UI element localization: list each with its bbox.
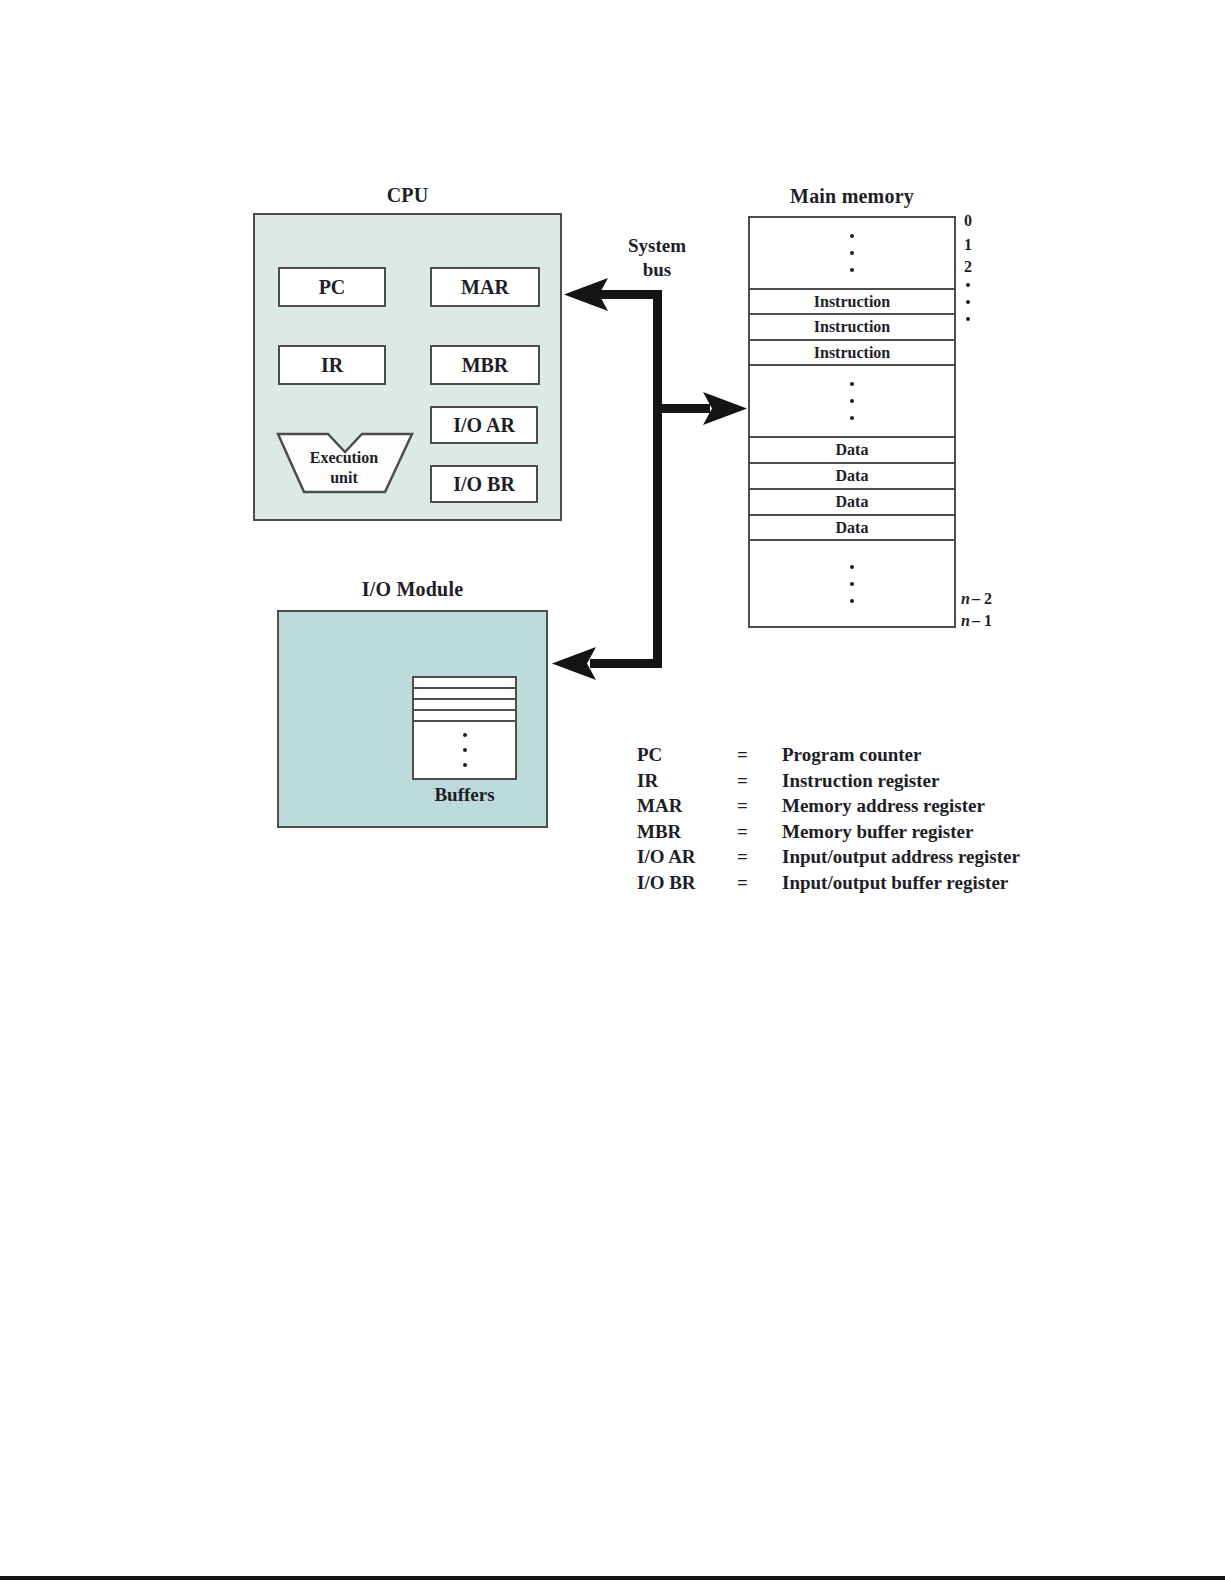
legend-equals: = (737, 870, 782, 896)
legend-equals: = (737, 742, 782, 768)
legend-abbr: MBR (637, 819, 737, 845)
legend-abbr: I/O AR (637, 844, 737, 870)
system-bus-label-line2: bus (597, 258, 717, 282)
legend-equals: = (737, 768, 782, 794)
bus-arm-to-io-module (590, 659, 662, 668)
register-pc: PC (278, 267, 386, 307)
system-bus-label: System bus (597, 234, 717, 282)
legend-abbr: PC (637, 742, 737, 768)
legend-abbr: I/O BR (637, 870, 737, 896)
legend-equals: = (737, 819, 782, 845)
memory-row-data: Data (750, 514, 954, 539)
vertical-ellipsis-icon (850, 565, 854, 603)
system-bus-trunk (653, 290, 662, 668)
main-memory-table: Instruction Instruction Instruction Data… (748, 216, 956, 628)
legend-desc: Input/output address register (782, 844, 1020, 870)
system-bus-label-line1: System (597, 234, 717, 258)
vertical-ellipsis-icon (850, 234, 854, 272)
execution-unit-label-line1: Execution (288, 448, 400, 468)
bus-arrow-to-memory-icon (703, 392, 747, 425)
buffer-slot (414, 678, 515, 689)
buffer-slot (414, 689, 515, 700)
buffer-slot (414, 711, 515, 722)
memory-row-instruction: Instruction (750, 313, 954, 339)
execution-unit-label-line2: unit (288, 468, 400, 488)
memory-row-ellipsis (750, 364, 954, 436)
bus-arrow-to-cpu-icon (564, 278, 608, 311)
legend-equals: = (737, 844, 782, 870)
register-mbr: MBR (430, 345, 540, 385)
legend-equals: = (737, 793, 782, 819)
legend-desc: Instruction register (782, 768, 1020, 794)
buffers-label: Buffers (412, 784, 517, 806)
memory-row-instruction: Instruction (750, 339, 954, 364)
memory-row-data: Data (750, 462, 954, 488)
legend-desc: Input/output buffer register (782, 870, 1020, 896)
memory-address-2: 2 (964, 259, 972, 275)
register-io-br: I/O BR (430, 465, 538, 503)
io-module-title: I/O Module (277, 578, 548, 601)
vertical-ellipsis-icon (850, 382, 854, 420)
main-memory-title: Main memory (748, 185, 956, 208)
memory-row-ellipsis (750, 539, 954, 626)
vertical-ellipsis-icon (966, 283, 970, 321)
legend-desc: Memory buffer register (782, 819, 1020, 845)
memory-row-data: Data (750, 436, 954, 462)
bus-arm-to-cpu (596, 290, 662, 299)
legend-abbr: IR (637, 768, 737, 794)
bus-arm-to-memory (653, 404, 710, 413)
legend-desc: Memory address register (782, 793, 1020, 819)
memory-address-n-minus-1: n– 1 (961, 613, 992, 629)
cpu-title: CPU (253, 184, 562, 207)
vertical-ellipsis-icon (463, 733, 467, 767)
memory-address-1: 1 (964, 237, 972, 253)
bus-arrow-to-io-module-icon (552, 647, 596, 680)
buffer-slot (414, 700, 515, 711)
page-bottom-rule (0, 1576, 1225, 1580)
legend: PC = Program counter IR = Instruction re… (637, 742, 1020, 895)
legend-desc: Program counter (782, 742, 1020, 768)
memory-address-0: 0 (964, 213, 972, 229)
register-io-ar: I/O AR (430, 406, 538, 444)
document-page: CPU PC MAR IR MBR I/O AR I/O BR Executio… (0, 0, 1225, 1585)
register-ir: IR (278, 345, 386, 385)
register-mar: MAR (430, 267, 540, 307)
execution-unit-label: Execution unit (288, 448, 400, 488)
memory-row-data: Data (750, 488, 954, 514)
legend-abbr: MAR (637, 793, 737, 819)
buffer-ellipsis-area (414, 722, 515, 778)
memory-row-instruction: Instruction (750, 288, 954, 313)
memory-row-ellipsis (750, 218, 954, 288)
memory-address-n-minus-2: n– 2 (961, 591, 992, 607)
buffer-stack (412, 676, 517, 780)
